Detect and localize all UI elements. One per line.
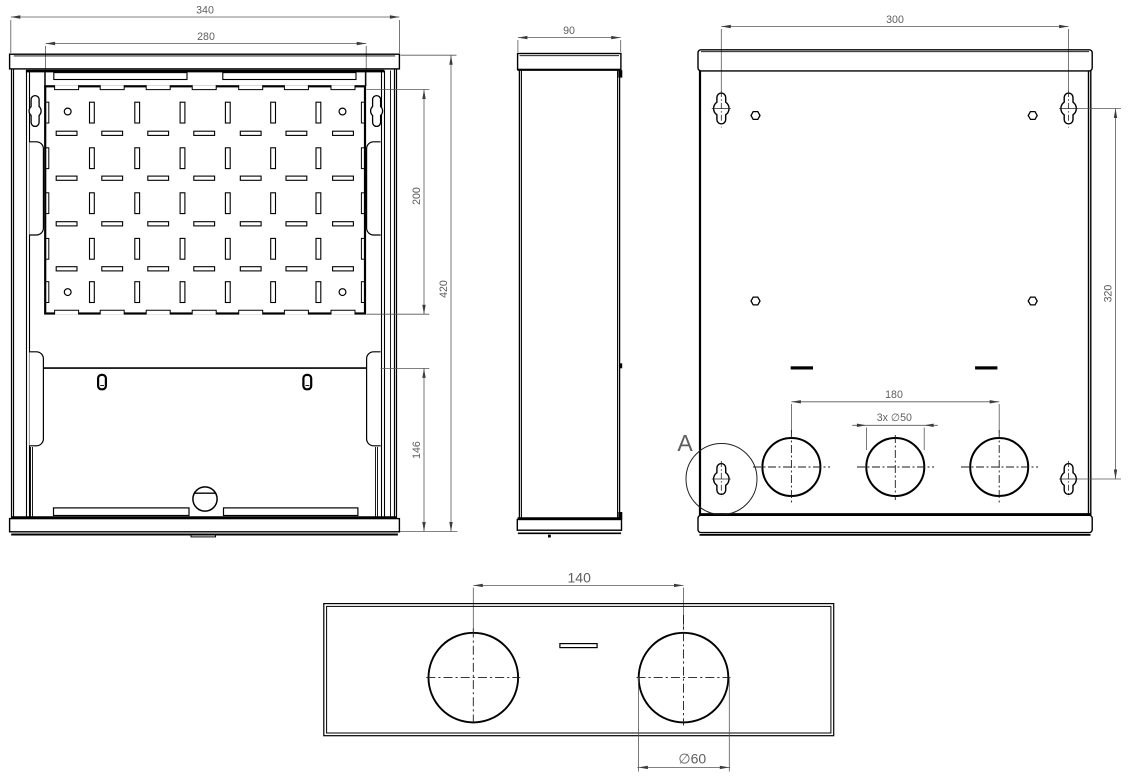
svg-text:180: 180 bbox=[885, 389, 903, 401]
svg-text:200: 200 bbox=[411, 187, 423, 205]
svg-text:A: A bbox=[677, 430, 693, 456]
svg-text:3x ∅50: 3x ∅50 bbox=[877, 412, 912, 424]
svg-text:∅60: ∅60 bbox=[678, 751, 706, 767]
svg-text:340: 340 bbox=[196, 5, 214, 17]
svg-text:146: 146 bbox=[411, 441, 423, 459]
svg-text:320: 320 bbox=[1103, 285, 1115, 303]
svg-text:420: 420 bbox=[438, 280, 450, 298]
svg-text:280: 280 bbox=[197, 31, 215, 43]
svg-text:300: 300 bbox=[886, 14, 904, 26]
svg-text:140: 140 bbox=[568, 569, 592, 585]
svg-text:90: 90 bbox=[563, 25, 575, 37]
